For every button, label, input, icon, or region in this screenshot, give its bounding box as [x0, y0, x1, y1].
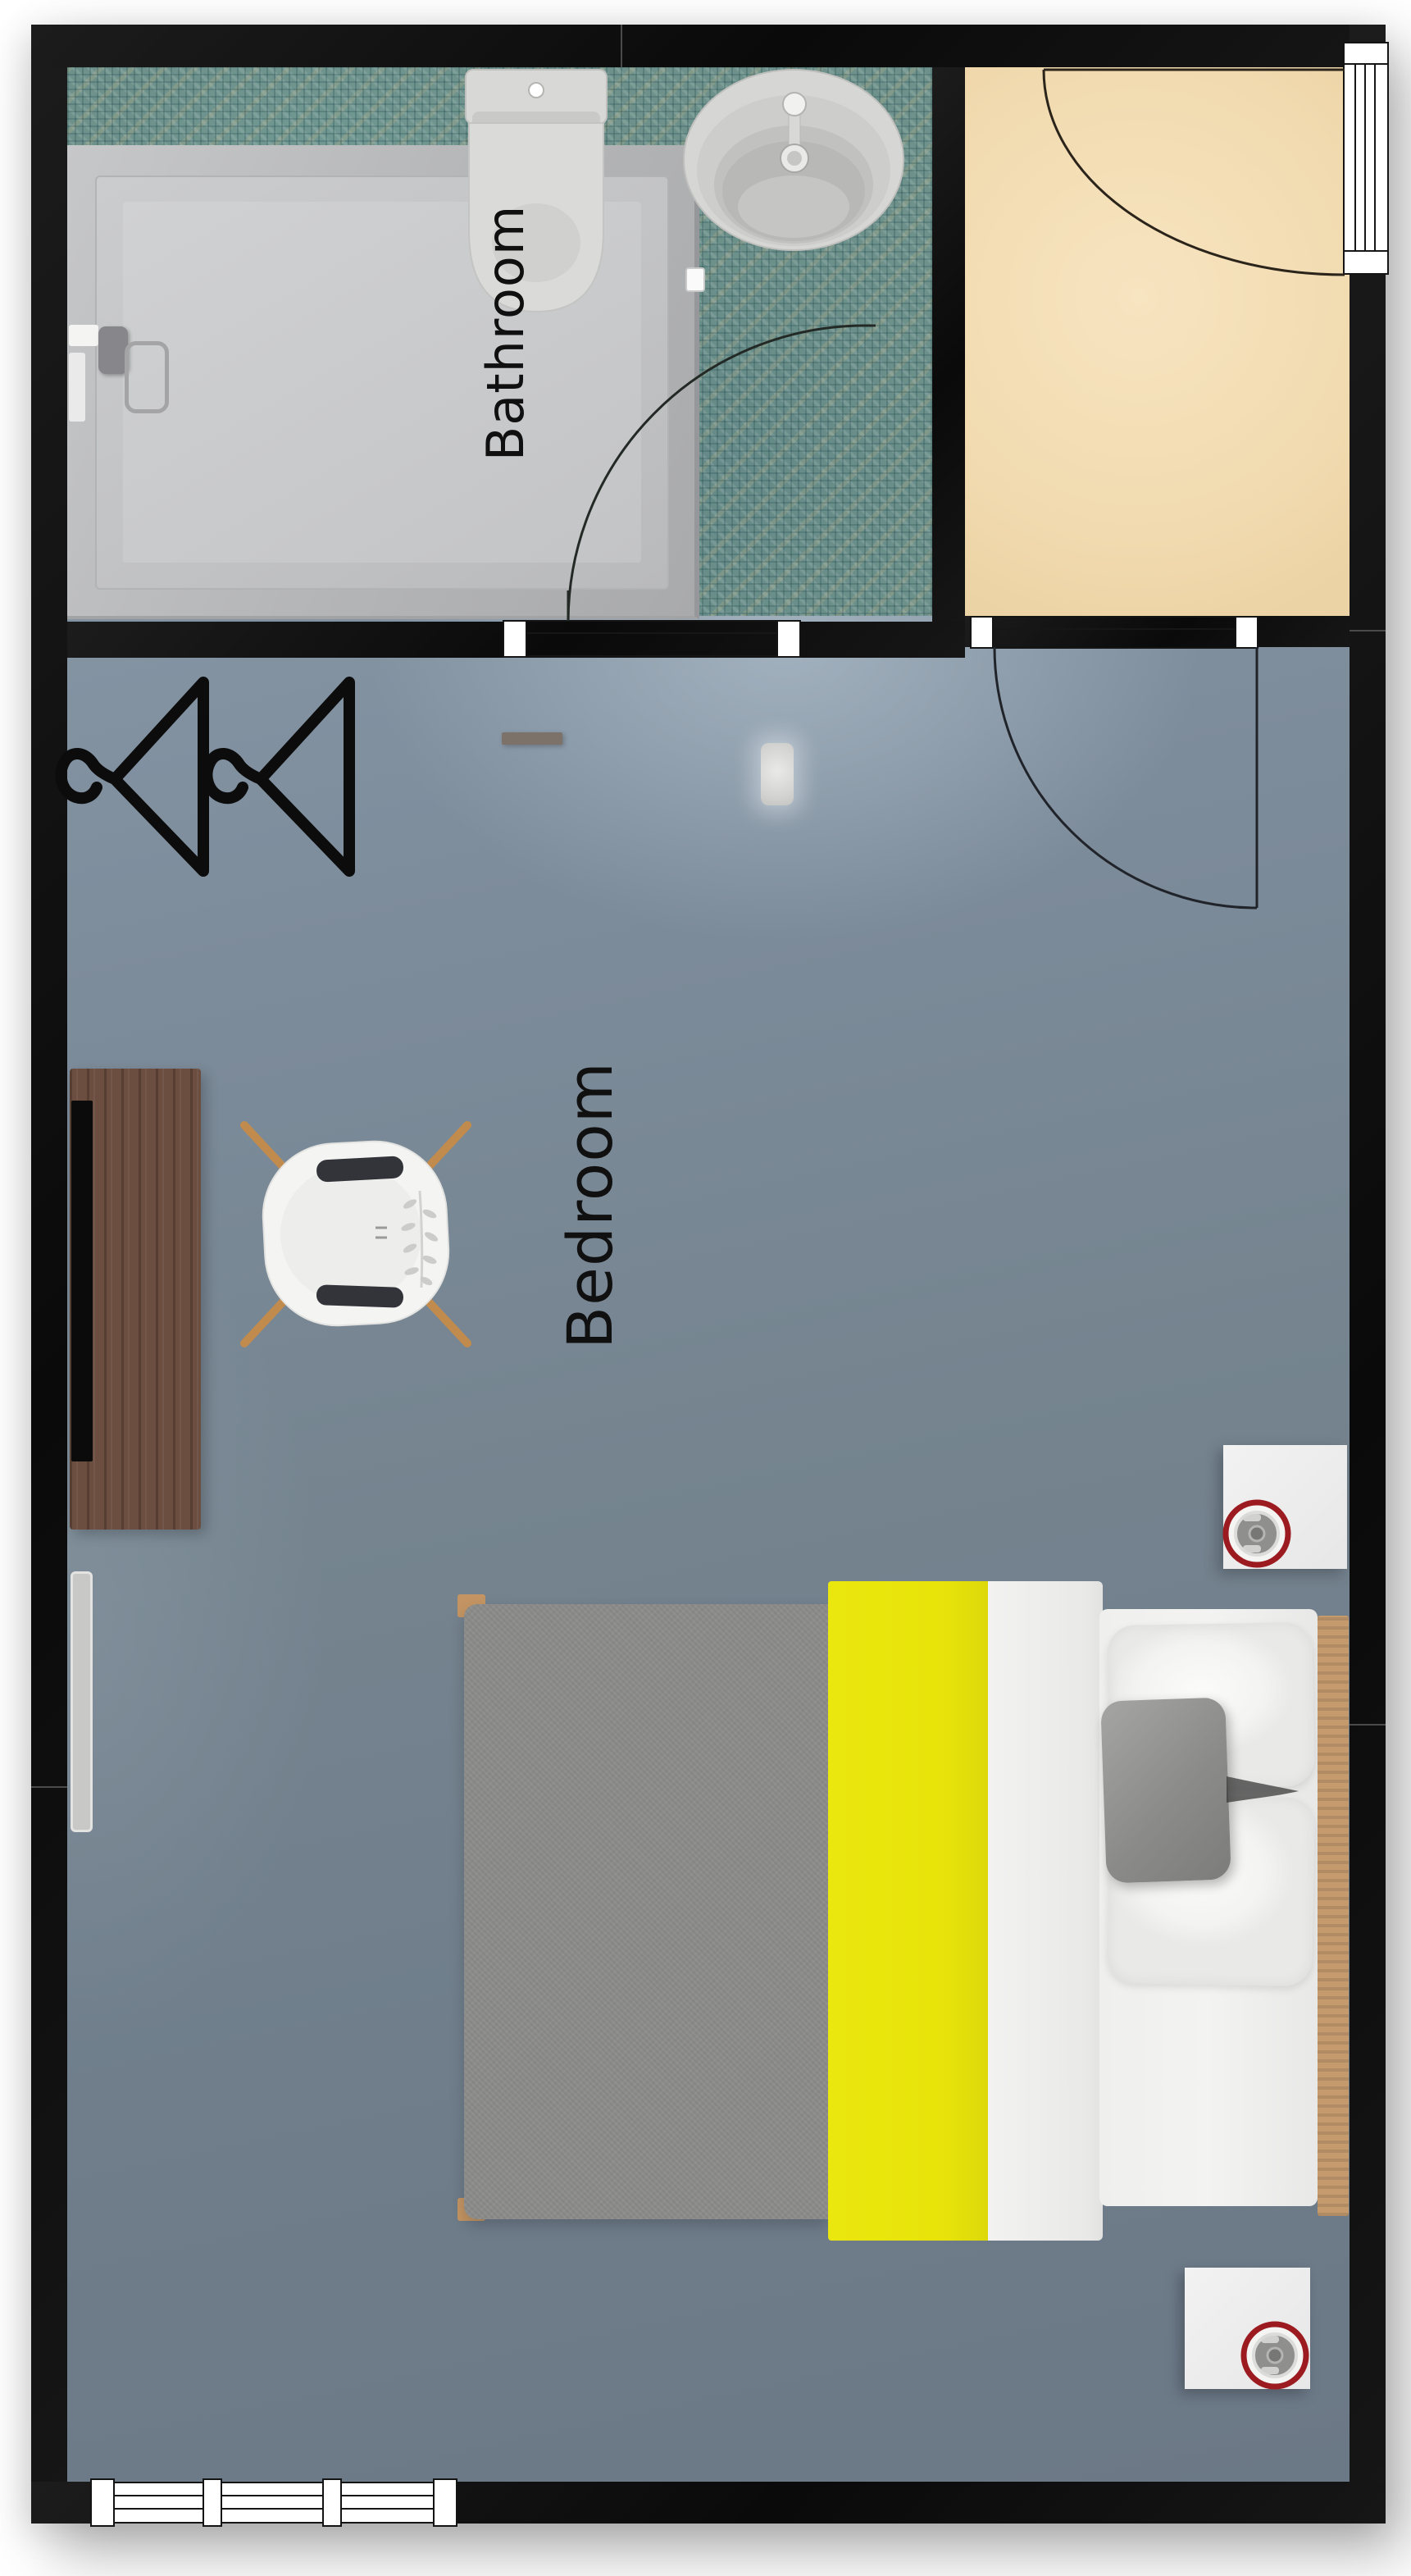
- chair-arm-slot-icon: [316, 1284, 404, 1308]
- entry-door-swing[interactable]: [1044, 70, 1345, 275]
- room-label-bathroom: Bathroom: [479, 198, 533, 468]
- bathroom-sink[interactable]: [684, 70, 903, 250]
- bathroom-door-swing[interactable]: [568, 326, 876, 621]
- clothes-hanger[interactable]: [61, 682, 203, 871]
- chair-arm-slot-icon: [316, 1156, 403, 1183]
- bedroom-door-swing[interactable]: [995, 647, 1257, 908]
- desk-chair[interactable]: [244, 1125, 467, 1343]
- table-lamp[interactable]: [1226, 1502, 1288, 1565]
- plan-vector-overlay: [0, 0, 1411, 2576]
- toilet-flush-button-icon: [529, 83, 544, 98]
- room-label-bedroom: Bedroom: [558, 1062, 623, 1349]
- clothes-hanger[interactable]: [207, 682, 349, 871]
- table-lamp[interactable]: [1244, 2324, 1306, 2387]
- bedding-crease: [1227, 1776, 1299, 1803]
- floor-plan-canvas: Bathroom Bedroom: [0, 0, 1411, 2576]
